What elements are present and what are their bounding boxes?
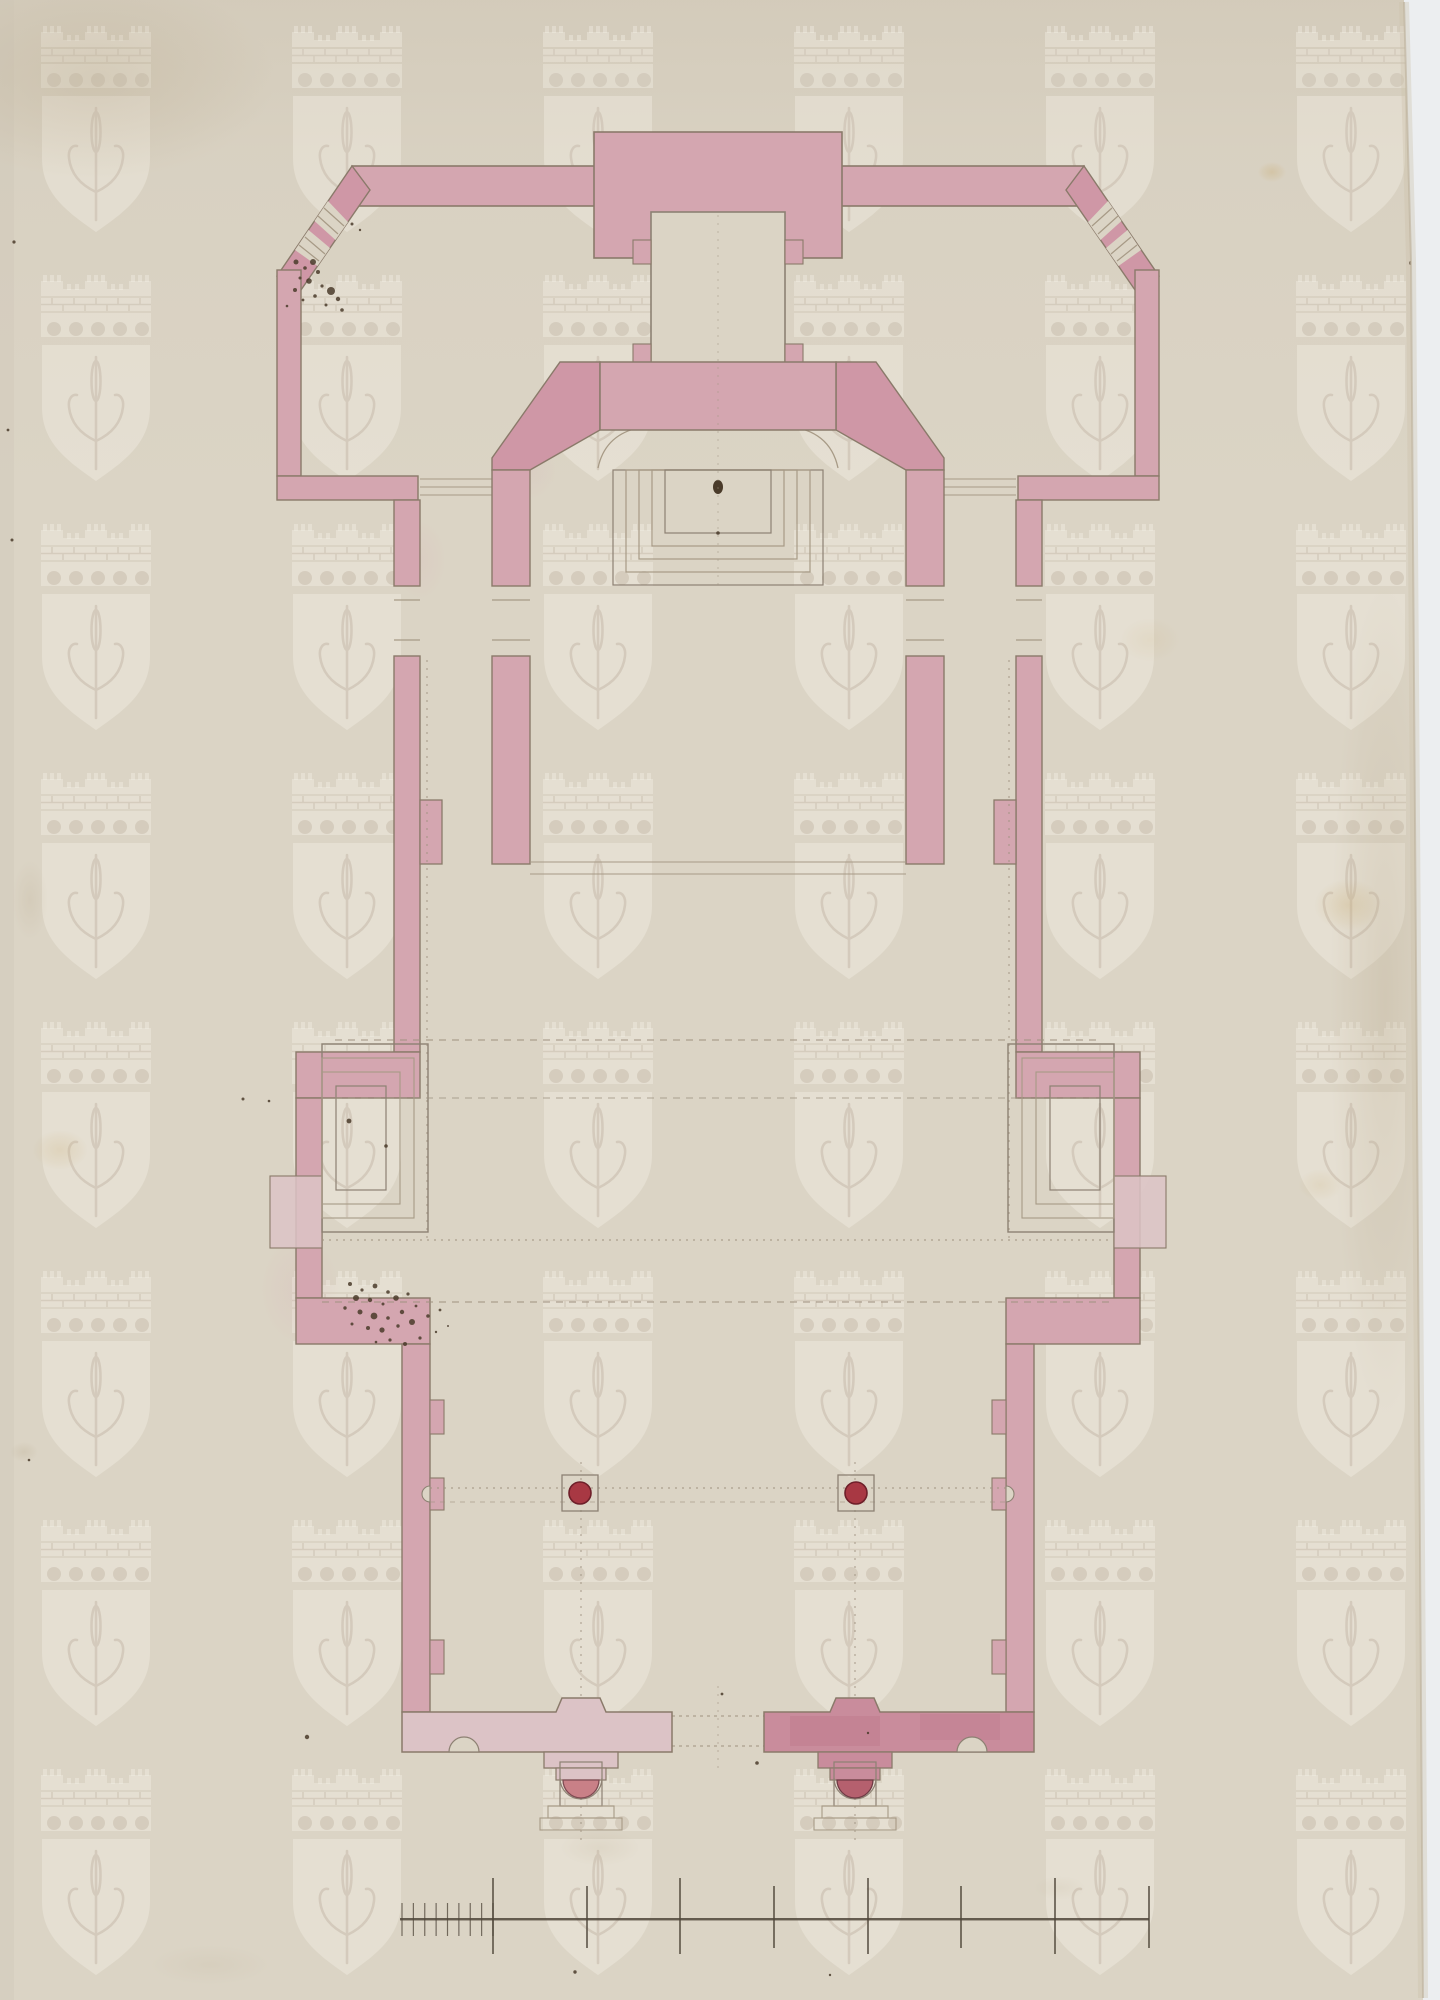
ink-speckle: [573, 1970, 576, 1973]
chancel-north-wall: [600, 362, 836, 430]
ink-speckle: [382, 1303, 385, 1306]
ink-speckle: [426, 1314, 430, 1318]
ink-speckle: [384, 1144, 388, 1148]
stain: [1314, 879, 1382, 931]
ink-speckle: [306, 278, 312, 284]
ink-speckle: [403, 1342, 407, 1346]
ink-speckle: [7, 429, 10, 432]
stain: [1120, 618, 1180, 662]
stain: [1330, 580, 1440, 1420]
ink-speckle: [418, 1336, 421, 1339]
ink-speckle: [305, 1735, 309, 1739]
ink-speckle: [12, 240, 15, 243]
ink-speckle: [371, 1313, 378, 1320]
ink-speckle: [368, 1298, 372, 1302]
ink-speckle: [11, 539, 14, 542]
ink-speckle: [286, 305, 289, 308]
stain: [1258, 162, 1286, 182]
stain: [150, 1945, 270, 1985]
ink-speckle: [316, 270, 320, 274]
stain: [1298, 1169, 1342, 1201]
ink-speckle: [310, 259, 316, 265]
ink-speckle: [400, 1310, 404, 1314]
scanned-drawing-page: [0, 0, 1440, 2000]
ink-speckle: [867, 1732, 869, 1734]
ink-speckle: [829, 1974, 831, 1976]
ink-speckle: [379, 1327, 384, 1332]
ink-speckle: [299, 277, 302, 280]
stain: [12, 860, 48, 940]
ink-speckle: [406, 1292, 409, 1295]
stain: [32, 1130, 88, 1170]
ink-speckle: [388, 1338, 391, 1341]
ink-speckle: [373, 1284, 378, 1289]
ink-speckle: [293, 288, 297, 292]
ink-speckle: [716, 531, 720, 535]
ink-speckle: [294, 260, 299, 265]
ink-speckle: [439, 1309, 442, 1312]
ink-speckle: [343, 1306, 346, 1309]
ink-speckle: [347, 1119, 352, 1124]
ink-speckle: [303, 266, 307, 270]
round-column: [569, 1482, 591, 1504]
ink-speckle: [435, 1331, 437, 1333]
stain: [10, 1442, 38, 1462]
ink-speckle: [348, 1282, 352, 1286]
ink-speckle: [336, 297, 340, 301]
ink-speckle: [386, 1290, 390, 1294]
ink-speckle: [393, 1295, 399, 1301]
ink-speckle: [351, 223, 354, 226]
ink-speckle: [327, 287, 335, 295]
floor-plan-scan: [0, 0, 1440, 2000]
ink-speckle: [325, 304, 328, 307]
ink-speckle: [721, 1693, 724, 1696]
ink-speckle: [415, 1305, 418, 1308]
ink-speckle: [359, 229, 361, 231]
ink-speckle: [28, 1459, 31, 1462]
ink-speckle: [302, 299, 305, 302]
ink-speckle: [242, 1098, 245, 1101]
ink-speckle: [447, 1325, 449, 1327]
ink-speckle: [353, 1295, 359, 1301]
paper-sheet: [0, 0, 1440, 2000]
ink-speckle: [409, 1319, 415, 1325]
ink-speckle: [313, 294, 317, 298]
round-column: [845, 1482, 867, 1504]
ink-speckle: [366, 1326, 370, 1330]
ink-speckle: [386, 1316, 390, 1320]
ink-speckle: [340, 308, 344, 312]
ink-speckle: [268, 1100, 271, 1103]
ink-speckle: [360, 1288, 363, 1291]
stain: [560, 1830, 640, 1866]
ink-speckle: [396, 1324, 399, 1327]
ink-speckle: [375, 1341, 378, 1344]
ink-speckle: [755, 1761, 759, 1765]
ink-speckle: [351, 1323, 354, 1326]
ink-speckle: [320, 284, 323, 287]
stain: [1034, 1876, 1086, 1900]
ink-speckle: [358, 1310, 363, 1315]
